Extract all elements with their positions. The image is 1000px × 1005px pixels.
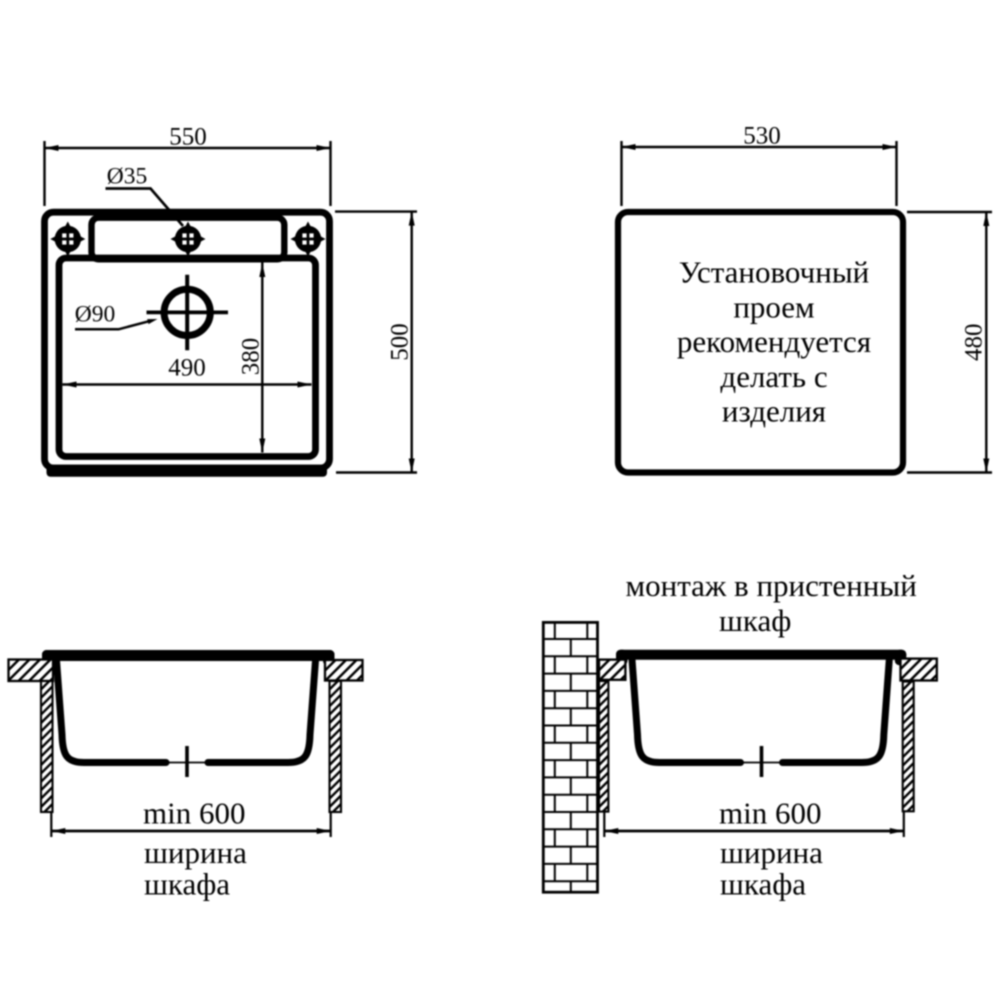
svg-text:ширина: ширина: [720, 835, 823, 870]
svg-text:min 600: min 600: [143, 796, 245, 831]
svg-text:Ø90: Ø90: [75, 302, 115, 328]
svg-text:монтаж в пристенный: монтаж в пристенный: [626, 568, 917, 603]
svg-text:380: 380: [238, 338, 265, 376]
svg-text:шкафа: шкафа: [144, 867, 230, 902]
svg-text:Ø35: Ø35: [107, 164, 147, 190]
svg-text:шкаф: шкаф: [719, 603, 791, 638]
svg-text:ширина: ширина: [144, 835, 247, 870]
svg-text:min 600: min 600: [719, 796, 821, 831]
svg-text:490: 490: [168, 355, 206, 382]
svg-text:500: 500: [387, 323, 414, 361]
svg-text:480: 480: [961, 324, 988, 362]
svg-text:530: 530: [743, 123, 781, 150]
svg-text:550: 550: [169, 124, 207, 151]
svg-text:шкафа: шкафа: [720, 867, 806, 902]
